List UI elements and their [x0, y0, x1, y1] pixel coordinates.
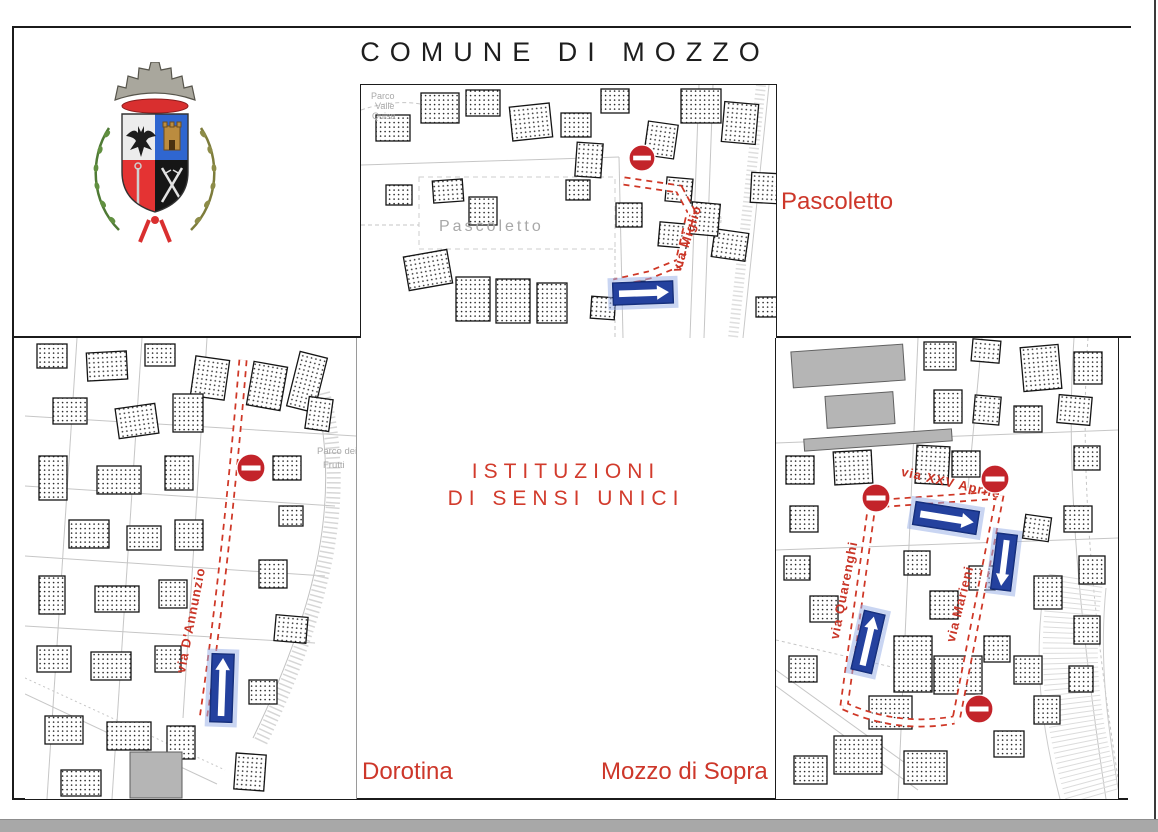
buildings: [376, 89, 777, 323]
no-entry-icon: [237, 454, 265, 482]
no-entry-icon: [981, 465, 1009, 493]
panel-label-mozzo-di-sopra: Mozzo di Sopra: [601, 758, 768, 786]
map-mozzo-di-sopra: via XXV Aprile via Quarenghi via Marieni: [775, 338, 1119, 799]
svg-text:Valle: Valle: [375, 101, 394, 111]
ribbon: [140, 216, 170, 242]
frame-left-line: [12, 26, 14, 800]
one-way-arrow-icon: [610, 278, 677, 308]
grey-building: [130, 752, 182, 798]
oak-branch: [191, 128, 217, 230]
heading-line-1: ISTITUZIONI: [358, 458, 774, 485]
one-way-arrow-icon: [207, 651, 238, 726]
panel-label-dorotina: Dorotina: [362, 758, 453, 786]
mozzo-coat-of-arms-icon: [85, 62, 225, 248]
no-entry-icon: [862, 484, 890, 512]
map-pascoletto: Parco Valle Quisa Pascoletto via Miglio: [360, 84, 777, 338]
laurel-branch: [93, 128, 119, 230]
svg-text:Quisa: Quisa: [372, 111, 396, 121]
map-grey-labels: Parco dei Frutti: [317, 446, 357, 471]
no-entry-icon: [965, 695, 993, 723]
one-way-arrow-icon: [987, 530, 1020, 595]
svg-text:Parco dei: Parco dei: [317, 446, 357, 457]
panel-label-pascoletto: Pascoletto: [781, 188, 893, 216]
center-heading: ISTITUZIONI DI SENSI UNICI: [358, 458, 774, 512]
heading-line-2: DI SENSI UNICI: [358, 485, 774, 512]
svg-text:Frutti: Frutti: [323, 460, 345, 471]
document-page: COMUNE DI MOZZO: [0, 0, 1158, 832]
frame-top-line: [12, 26, 1131, 28]
no-entry-icon: [629, 145, 655, 171]
page-bottom-bar: [0, 819, 1158, 832]
map-dorotina: Parco dei Frutti via D'Annunzio: [25, 338, 357, 799]
tower-icon: [163, 122, 181, 150]
one-way-arrow-icon: [909, 498, 983, 538]
buildings: [37, 344, 333, 796]
svg-text:Pascoletto: Pascoletto: [439, 218, 544, 235]
page-right-edge: [1154, 0, 1156, 832]
page-title: COMUNE DI MOZZO: [360, 37, 769, 68]
svg-text:Parco: Parco: [371, 91, 395, 101]
crown: [115, 62, 195, 113]
